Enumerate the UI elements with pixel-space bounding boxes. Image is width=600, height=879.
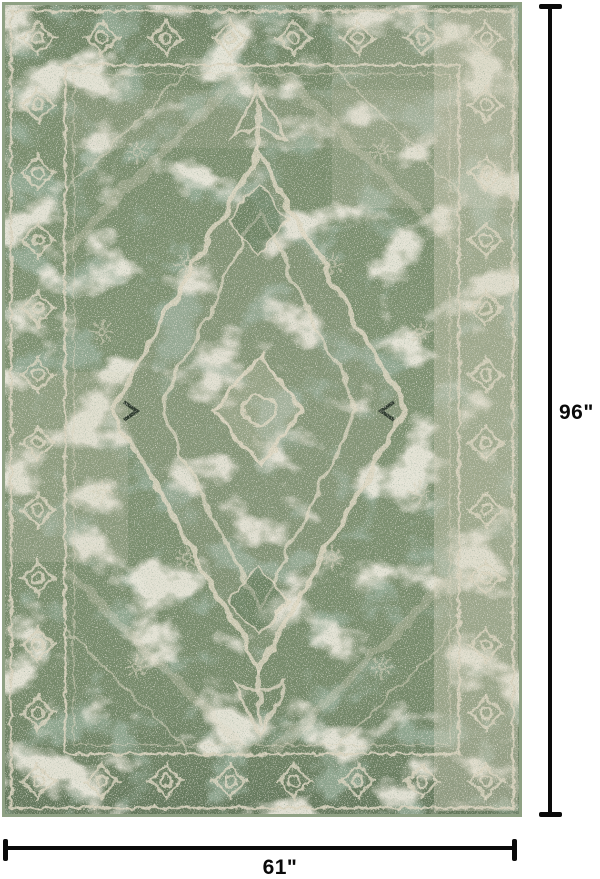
height-dimension-line — [548, 7, 552, 813]
height-dimension-cap-top — [539, 4, 562, 9]
product-dimension-figure: 96" 61" — [0, 0, 600, 879]
width-dimension-cap-right — [512, 839, 517, 861]
width-dimension-label: 61" — [230, 857, 330, 878]
height-dimension-cap-bottom — [539, 812, 562, 817]
rug-illustration — [2, 2, 522, 817]
rug-product-image — [2, 2, 522, 817]
width-dimension-line — [5, 846, 516, 850]
height-dimension-label: 96" — [559, 402, 594, 423]
width-dimension-cap-left — [3, 839, 8, 861]
